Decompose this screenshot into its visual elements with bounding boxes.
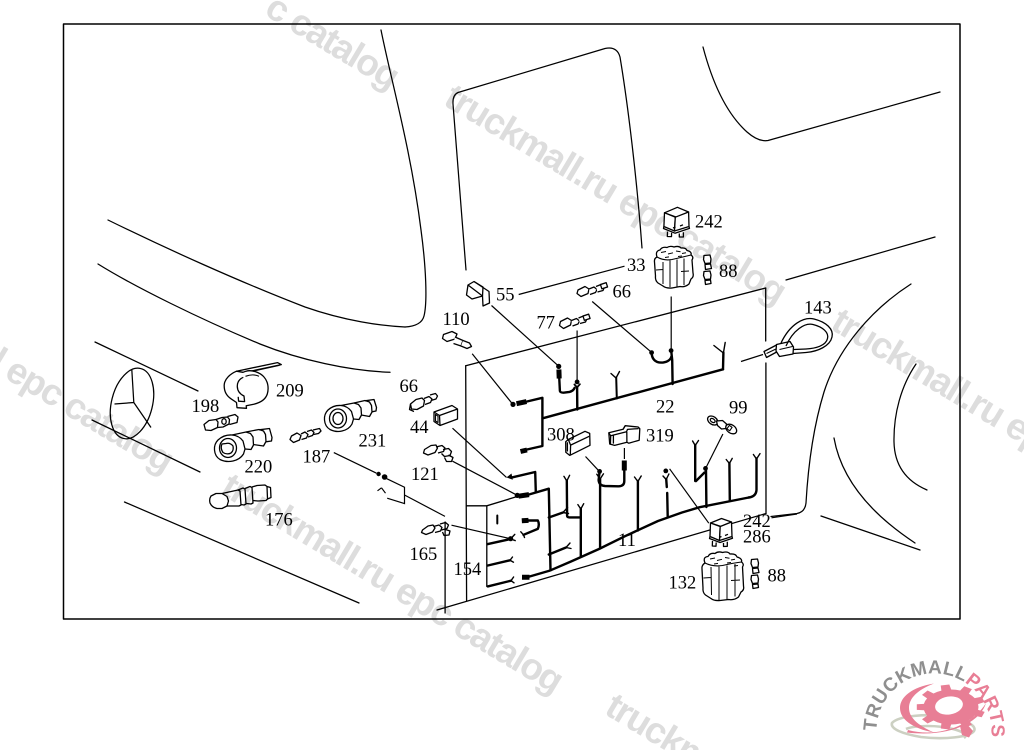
svg-text:88: 88: [768, 567, 787, 587]
svg-text:11: 11: [618, 531, 636, 551]
svg-text:99: 99: [729, 399, 748, 419]
svg-text:22: 22: [656, 398, 675, 418]
svg-text:154: 154: [454, 560, 482, 580]
svg-text:132: 132: [669, 574, 697, 594]
svg-text:66: 66: [400, 377, 419, 397]
svg-text:286: 286: [743, 528, 771, 548]
svg-text:165: 165: [410, 545, 438, 565]
svg-text:66: 66: [613, 283, 632, 303]
svg-text:187: 187: [303, 448, 331, 468]
svg-text:121: 121: [411, 465, 439, 485]
svg-text:198: 198: [192, 397, 220, 417]
svg-text:77: 77: [537, 314, 556, 334]
svg-text:308: 308: [547, 426, 575, 446]
svg-text:220: 220: [245, 458, 273, 478]
svg-text:231: 231: [359, 432, 387, 452]
svg-text:33: 33: [627, 256, 646, 276]
svg-text:55: 55: [496, 286, 515, 306]
svg-text:143: 143: [804, 299, 832, 319]
svg-text:209: 209: [276, 382, 304, 402]
svg-text:44: 44: [410, 418, 429, 438]
svg-text:242: 242: [695, 213, 723, 233]
svg-text:176: 176: [265, 511, 293, 531]
svg-text:88: 88: [719, 262, 738, 282]
svg-text:110: 110: [443, 310, 470, 330]
svg-text:319: 319: [646, 427, 674, 447]
